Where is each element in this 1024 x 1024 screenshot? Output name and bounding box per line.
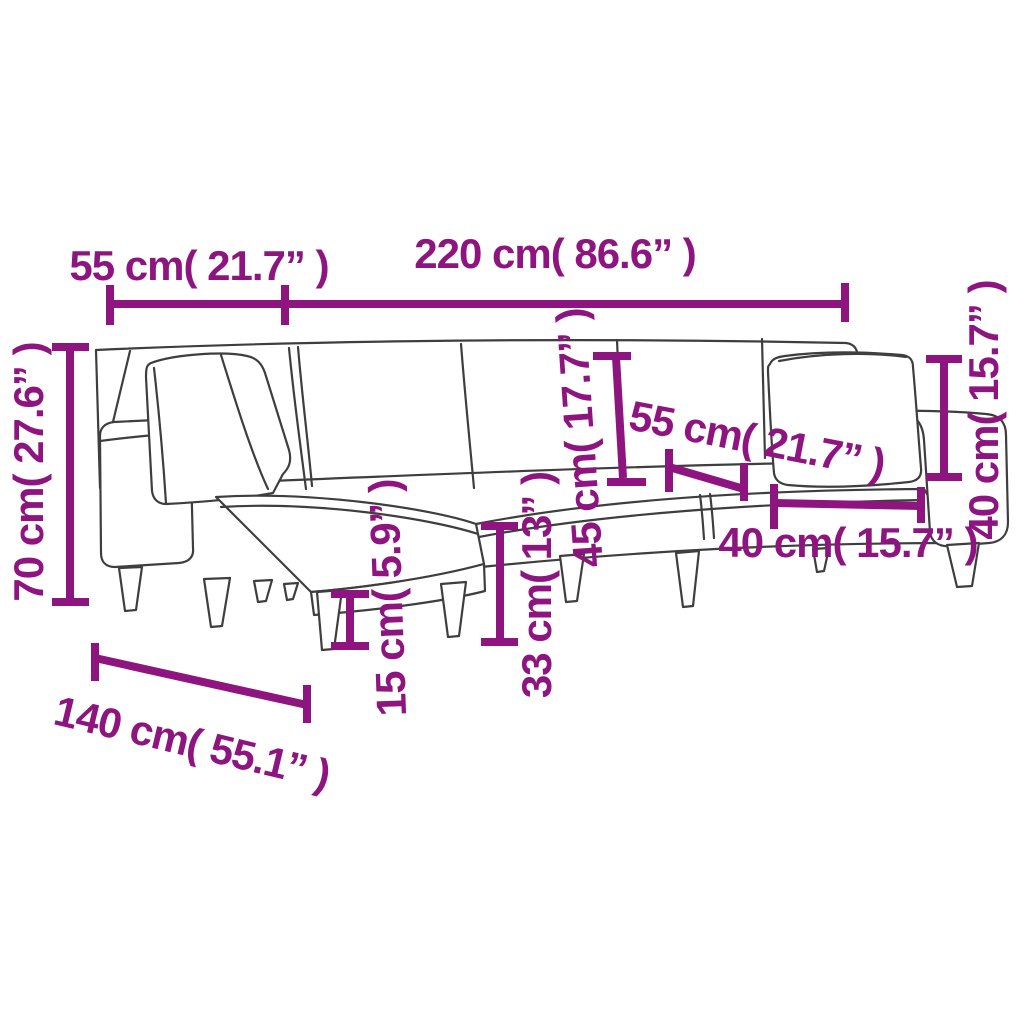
dim-label-armrest-height: 40 cm( 15.7” ) bbox=[963, 280, 1005, 539]
dim-label-total-length: 220 cm( 86.6” ) bbox=[414, 233, 696, 275]
dimension-diagram: 55 cm( 21.7” ) 220 cm( 86.6” ) 70 cm( 27… bbox=[0, 0, 1024, 1024]
dim-label-seat-height: 33 cm( 13” ) bbox=[516, 472, 558, 698]
dim-line-top-width bbox=[110, 283, 845, 325]
sofa-dimension-drawing bbox=[0, 0, 1024, 1024]
dim-label-overall-height: 70 cm( 27.6” ) bbox=[8, 342, 50, 601]
dim-label-ground-clearance: 15 cm( 5.9” ) bbox=[363, 479, 413, 717]
dim-label-left-section-width: 55 cm( 21.7” ) bbox=[69, 245, 328, 287]
dim-line-overall-height bbox=[52, 347, 89, 602]
dim-label-seat-width-right: 40 cm( 15.7” ) bbox=[718, 522, 977, 564]
